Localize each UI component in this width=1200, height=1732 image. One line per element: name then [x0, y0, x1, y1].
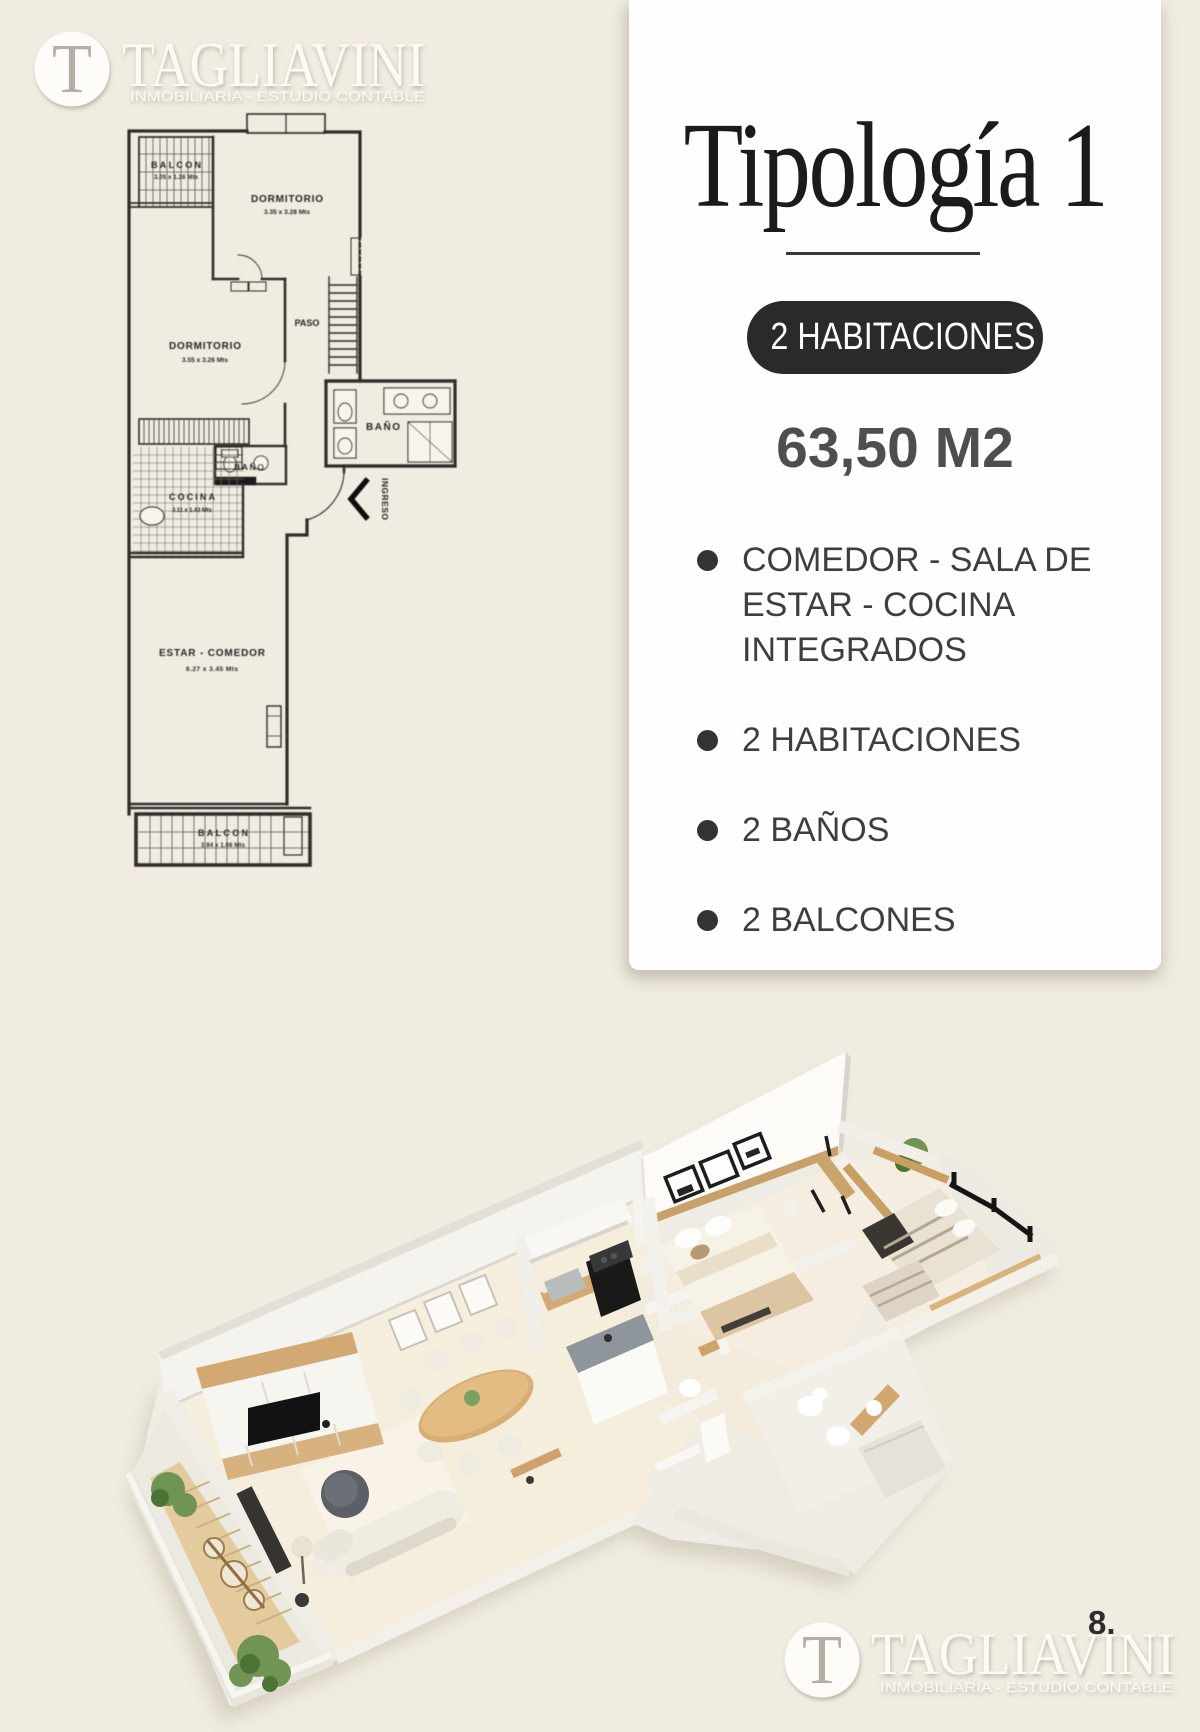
svg-text:3.11 x 1.43 Mts: 3.11 x 1.43 Mts [172, 508, 213, 514]
svg-text:TAGLIAVINI: TAGLIAVINI [871, 1621, 1175, 1687]
svg-text:INMOBILIARIA - ESTUDIO CONTABL: INMOBILIARIA - ESTUDIO CONTABLE [880, 1680, 1173, 1695]
svg-text:INGRESO: INGRESO [380, 478, 390, 520]
svg-text:DORMITORIO: DORMITORIO [169, 341, 241, 352]
svg-text:ESTAR - COMEDOR: ESTAR - COMEDOR [159, 648, 266, 659]
svg-text:T: T [802, 1622, 842, 1699]
svg-text:3.94 x 1.06 Mts: 3.94 x 1.06 Mts [201, 843, 246, 849]
svg-text:T: T [52, 31, 92, 108]
svg-text:3.35 x 3.28 Mts: 3.35 x 3.28 Mts [264, 209, 310, 216]
svg-text:6.27 x 3.45 Mts: 6.27 x 3.45 Mts [186, 666, 238, 673]
svg-text:BALCON: BALCON [198, 828, 248, 838]
svg-text:BAÑO: BAÑO [366, 420, 400, 433]
svg-text:3.55 x 3.26 Mts: 3.55 x 3.26 Mts [182, 357, 228, 364]
svg-text:COCINA: COCINA [169, 492, 216, 502]
svg-text:INMOBILIARIA - ESTUDIO CONTABL: INMOBILIARIA - ESTUDIO CONTABLE [130, 89, 425, 104]
svg-text:DORMITORIO: DORMITORIO [251, 194, 323, 205]
svg-text:BAÑO: BAÑO [234, 462, 264, 472]
svg-text:3.05 x 1.26 Mts: 3.05 x 1.26 Mts [154, 175, 199, 181]
svg-text:PASO: PASO [295, 318, 320, 328]
svg-text:BALCON: BALCON [151, 160, 201, 170]
